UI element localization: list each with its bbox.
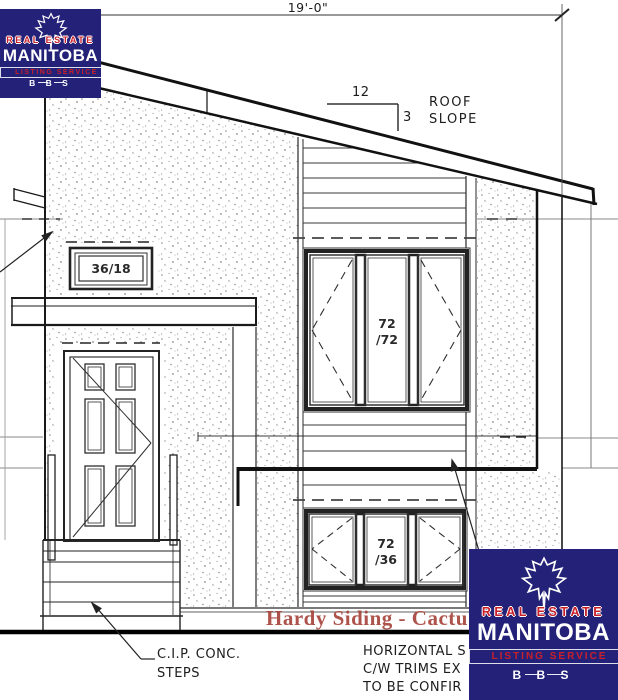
watermark-listing-box: LISTING SERVICE [0,67,101,78]
upper-window-size-label: 72 /72 [365,316,409,347]
watermark-listing-box: LISTING SERVICE [469,649,618,664]
maple-leaf-icon [511,556,577,612]
siding-product-note: Hardy Siding - Cactu [266,606,468,631]
steps-note-line2: STEPS [157,667,200,681]
watermark-manitoba-text: MANITOBA [469,619,618,647]
roof-slope-label-2: SLOPE [429,113,478,127]
watermark-bbs-text: B B S [0,82,101,83]
roof-slope-label-1: ROOF [429,96,472,110]
lower-window-width: 72 [364,536,408,552]
steps-note-line1: C.I.P. CONC. [157,648,241,662]
elevation-sheet: 19'-0" 12 3 ROOF SLOPE 36/18 72 /72 72 /… [0,0,618,700]
siding-note-line3: TO BE CONFIR [363,681,462,695]
small-window-size-label: 36/18 [70,261,152,277]
slope-rise-label: 3 [403,111,412,125]
watermark-realestate-text: REAL ESTATE [469,605,618,619]
siding-note-line2: C/W TRIMS EX [363,663,461,677]
mls-watermark-top-left: REAL ESTATE MANITOBA LISTING SERVICE B B… [0,9,101,98]
watermark-realestate-text: REAL ESTATE [0,35,101,45]
upper-window-height: /72 [365,332,409,348]
watermark-manitoba-text: MANITOBA [0,46,101,66]
overall-width-dimension: 19'-0" [282,1,334,15]
siding-note-line1: HORIZONTAL S [363,645,466,659]
watermark-bbs-label: B B S [469,668,618,682]
mls-watermark-bottom-right: REAL ESTATE MANITOBA LISTING SERVICE B B… [469,549,618,700]
lower-window-height: /36 [364,552,408,568]
upper-window-width: 72 [365,316,409,332]
lower-window-size-label: 72 /36 [364,536,408,567]
watermark-bbs-text: B B S [469,674,618,675]
slope-run-label: 12 [352,86,370,100]
watermark-bbs-label: B B S [0,78,101,88]
